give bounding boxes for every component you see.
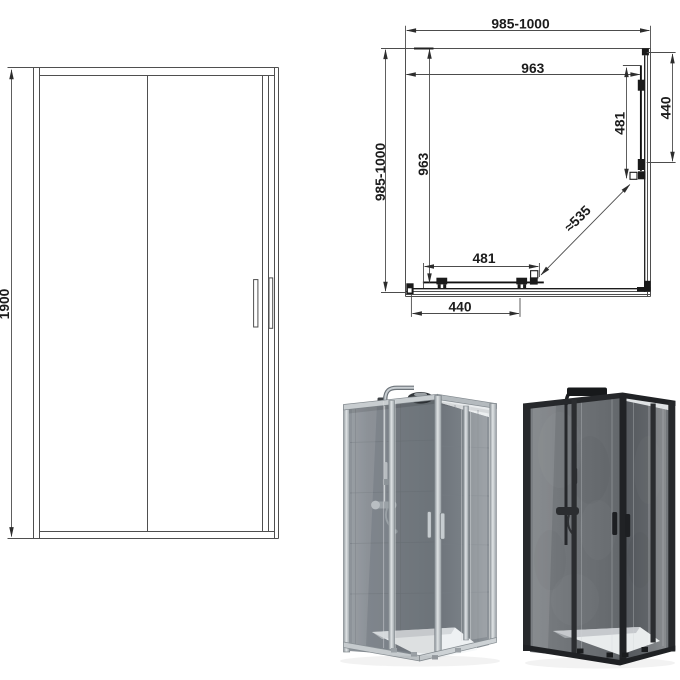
- svg-text:1900: 1900: [0, 288, 12, 319]
- svg-text:985-1000: 985-1000: [373, 143, 388, 202]
- svg-text:≈535: ≈535: [562, 202, 594, 234]
- svg-text:440: 440: [448, 299, 471, 314]
- svg-text:963: 963: [521, 61, 544, 76]
- svg-text:481: 481: [472, 251, 495, 266]
- svg-text:440: 440: [659, 96, 674, 119]
- svg-text:481: 481: [613, 111, 628, 134]
- svg-text:963: 963: [416, 152, 431, 175]
- svg-text:985-1000: 985-1000: [491, 16, 550, 31]
